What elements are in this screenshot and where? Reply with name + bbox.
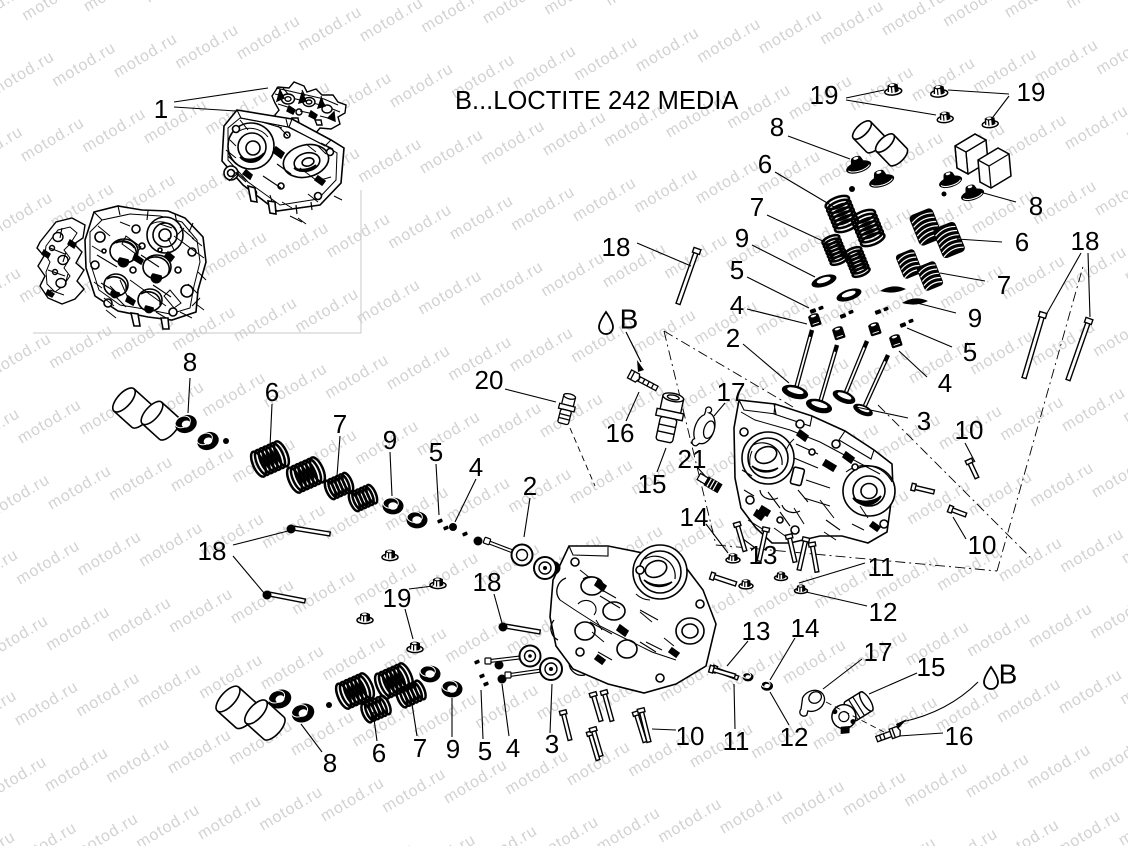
svg-text:12: 12 xyxy=(780,722,809,752)
svg-text:19: 19 xyxy=(1017,77,1046,107)
svg-text:18: 18 xyxy=(1071,226,1100,256)
svg-text:2: 2 xyxy=(726,323,740,353)
svg-text:13: 13 xyxy=(749,540,778,570)
svg-text:21: 21 xyxy=(678,444,707,474)
svg-text:5: 5 xyxy=(963,337,977,367)
svg-text:9: 9 xyxy=(735,223,749,253)
svg-text:12: 12 xyxy=(869,597,898,627)
svg-text:10: 10 xyxy=(676,721,705,751)
svg-text:20: 20 xyxy=(475,365,504,395)
svg-text:7: 7 xyxy=(997,270,1011,300)
svg-text:18: 18 xyxy=(602,232,631,262)
svg-text:3: 3 xyxy=(545,729,559,759)
svg-text:1: 1 xyxy=(154,94,168,124)
svg-text:6: 6 xyxy=(265,377,279,407)
svg-text:5: 5 xyxy=(730,255,744,285)
svg-text:B...LOCTITE 242 MEDIA: B...LOCTITE 242 MEDIA xyxy=(455,87,738,115)
svg-text:19: 19 xyxy=(810,80,839,110)
svg-text:3: 3 xyxy=(917,406,931,436)
svg-text:8: 8 xyxy=(1029,191,1043,221)
svg-text:8: 8 xyxy=(770,112,784,142)
svg-text:4: 4 xyxy=(938,368,952,398)
svg-text:7: 7 xyxy=(333,409,347,439)
svg-text:10: 10 xyxy=(968,530,997,560)
svg-text:18: 18 xyxy=(473,567,502,597)
svg-text:B: B xyxy=(999,659,1018,690)
svg-text:5: 5 xyxy=(478,736,492,766)
svg-text:8: 8 xyxy=(323,748,337,778)
svg-text:11: 11 xyxy=(723,726,750,756)
svg-text:8: 8 xyxy=(183,347,197,377)
svg-text:B: B xyxy=(620,304,639,335)
svg-text:6: 6 xyxy=(1015,227,1029,257)
svg-text:4: 4 xyxy=(469,452,483,482)
svg-text:6: 6 xyxy=(758,149,772,179)
svg-text:10: 10 xyxy=(955,415,984,445)
svg-text:16: 16 xyxy=(606,418,635,448)
svg-text:11: 11 xyxy=(868,552,895,582)
svg-text:13: 13 xyxy=(742,616,771,646)
svg-text:6: 6 xyxy=(372,738,386,768)
svg-text:16: 16 xyxy=(945,721,974,751)
svg-text:9: 9 xyxy=(383,425,397,455)
svg-text:2: 2 xyxy=(523,471,537,501)
svg-text:4: 4 xyxy=(506,733,520,763)
svg-text:9: 9 xyxy=(968,303,982,333)
svg-text:18: 18 xyxy=(198,536,227,566)
svg-text:4: 4 xyxy=(730,290,744,320)
svg-text:19: 19 xyxy=(383,583,412,613)
svg-text:17: 17 xyxy=(717,377,746,407)
svg-text:5: 5 xyxy=(429,437,443,467)
svg-text:17: 17 xyxy=(864,637,893,667)
svg-text:9: 9 xyxy=(446,734,460,764)
svg-text:15: 15 xyxy=(638,469,667,499)
svg-text:7: 7 xyxy=(413,733,427,763)
svg-text:15: 15 xyxy=(917,652,946,682)
svg-text:14: 14 xyxy=(680,502,709,532)
svg-text:7: 7 xyxy=(750,192,764,222)
